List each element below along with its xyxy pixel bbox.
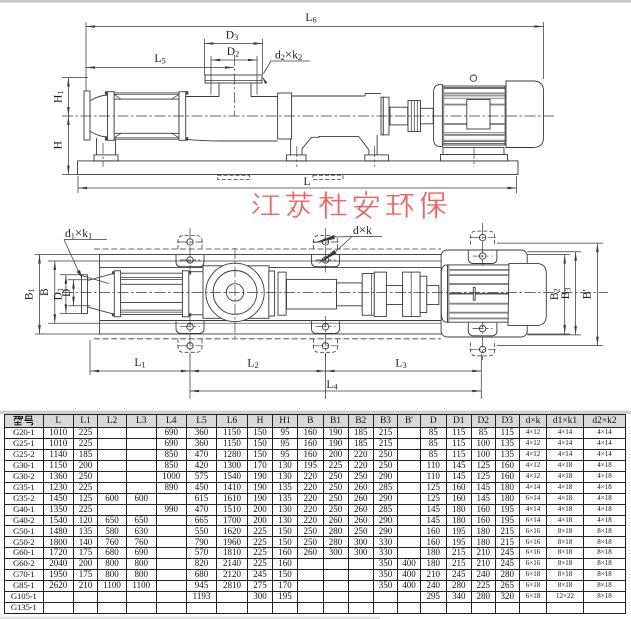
svg-text:d2×k2: d2×k2 (275, 47, 302, 63)
svg-text:B1: B1 (24, 288, 37, 300)
svg-text:L2: L2 (247, 358, 258, 371)
svg-text:L3: L3 (395, 358, 406, 371)
svg-text:H: H (53, 141, 65, 149)
svg-text:L4: L4 (326, 379, 337, 392)
svg-text:B': B' (582, 289, 594, 299)
svg-text:D2: D2 (227, 46, 239, 59)
svg-text:L: L (303, 176, 310, 188)
svg-text:H1: H1 (53, 91, 66, 103)
svg-text:d×k: d×k (353, 222, 372, 237)
svg-text:d1×k1: d1×k1 (65, 225, 92, 241)
svg-text:L6: L6 (305, 12, 316, 25)
svg-text:B3: B3 (560, 287, 573, 299)
svg-text:D: D (61, 289, 73, 297)
svg-text:B: B (39, 288, 51, 296)
svg-text:L5: L5 (154, 53, 165, 66)
svg-text:L1: L1 (134, 357, 145, 370)
svg-text:D3: D3 (226, 30, 238, 43)
